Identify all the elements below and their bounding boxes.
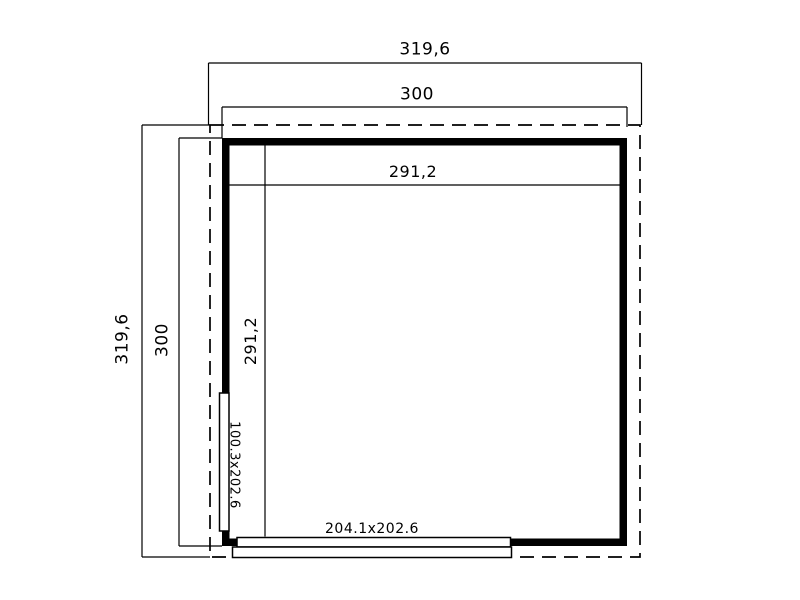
window-size-label: 100.3x202.6: [228, 421, 241, 509]
door-size-label: 204.1x202.6: [325, 522, 419, 536]
door-leaf-outer: [233, 547, 512, 558]
dim-label-outer-depth: 319,6: [115, 313, 132, 364]
dimension-lines: [142, 63, 642, 557]
dim-label-interior-depth: 291,2: [243, 317, 259, 365]
dim-label-interior-width: 291,2: [389, 164, 437, 180]
dim-label-outer-width: 319,6: [399, 42, 450, 59]
dim-label-frame-width: 300: [400, 87, 434, 104]
door-leaf-inner: [237, 538, 511, 548]
floor-plan-canvas: 319,6 300 291,2 319,6 300 291,2 100.3x20…: [0, 0, 800, 600]
roof-overhang-outline: [210, 125, 640, 557]
dim-label-frame-depth: 300: [155, 323, 172, 357]
front-double-door: [233, 538, 512, 558]
wall-outline: [222, 138, 627, 546]
